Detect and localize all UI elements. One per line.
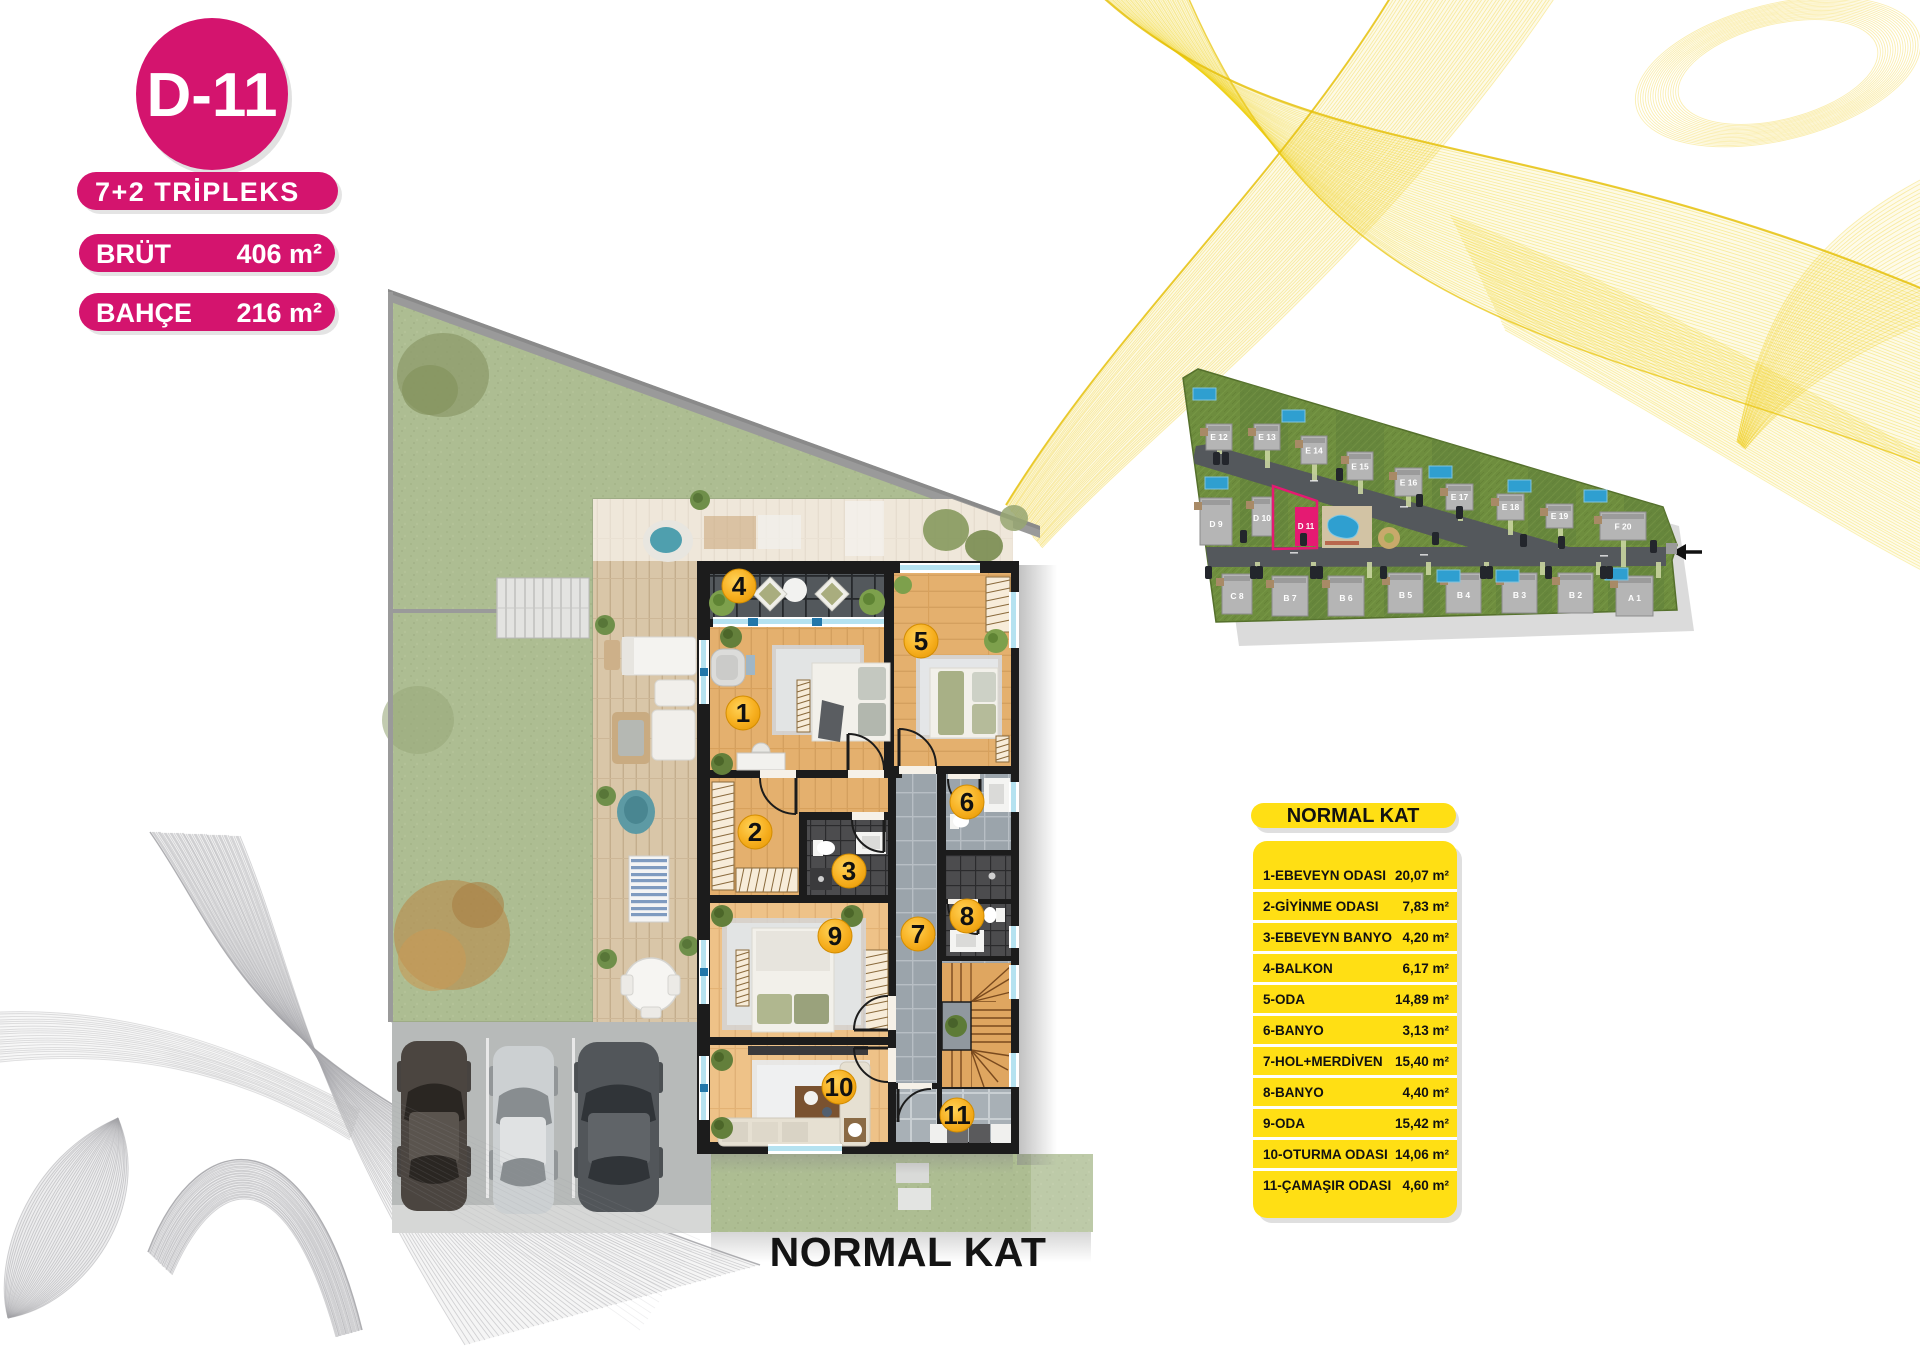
svg-text:E 17: E 17: [1451, 492, 1469, 502]
svg-text:1-EBEVEYN ODASI: 1-EBEVEYN ODASI: [1263, 868, 1386, 883]
svg-text:BAHÇE: BAHÇE: [96, 298, 192, 328]
svg-text:14,06 m²: 14,06 m²: [1395, 1147, 1450, 1162]
svg-text:4,40 m²: 4,40 m²: [1402, 1085, 1449, 1100]
svg-text:E 19: E 19: [1551, 511, 1569, 521]
svg-text:B 3: B 3: [1513, 590, 1527, 600]
svg-text:14,89 m²: 14,89 m²: [1395, 992, 1450, 1007]
svg-text:E 13: E 13: [1258, 432, 1276, 442]
svg-text:7,83 m²: 7,83 m²: [1402, 899, 1449, 914]
svg-text:BRÜT: BRÜT: [96, 239, 171, 269]
svg-text:3-EBEVEYN BANYO: 3-EBEVEYN BANYO: [1263, 930, 1392, 945]
svg-text:6: 6: [960, 787, 974, 817]
svg-text:E 12: E 12: [1210, 432, 1228, 442]
svg-text:11-ÇAMAŞIR ODASI: 11-ÇAMAŞIR ODASI: [1263, 1178, 1391, 1193]
svg-text:5: 5: [914, 626, 928, 656]
svg-text:6,17 m²: 6,17 m²: [1402, 961, 1449, 976]
svg-text:D 11: D 11: [1298, 522, 1315, 531]
svg-text:B 6: B 6: [1339, 593, 1353, 603]
svg-text:F 20: F 20: [1614, 521, 1631, 531]
svg-text:NORMAL KAT: NORMAL KAT: [1287, 805, 1420, 827]
svg-text:9: 9: [828, 921, 842, 951]
svg-text:406 m²: 406 m²: [236, 239, 322, 269]
svg-text:E 16: E 16: [1400, 477, 1418, 487]
svg-text:D 10: D 10: [1253, 513, 1271, 523]
svg-text:E 18: E 18: [1502, 502, 1520, 512]
svg-text:B 4: B 4: [1457, 590, 1471, 600]
svg-text:6-BANYO: 6-BANYO: [1263, 1023, 1324, 1038]
svg-text:3,13 m²: 3,13 m²: [1402, 1023, 1449, 1038]
svg-text:10-OTURMA ODASI: 10-OTURMA ODASI: [1263, 1147, 1388, 1162]
svg-text:8-BANYO: 8-BANYO: [1263, 1085, 1324, 1100]
svg-text:2-GİYİNME ODASI: 2-GİYİNME ODASI: [1263, 899, 1379, 914]
svg-text:4,60 m²: 4,60 m²: [1402, 1178, 1449, 1193]
svg-text:A 1: A 1: [1628, 593, 1641, 603]
svg-text:8: 8: [960, 901, 974, 931]
svg-text:D 9: D 9: [1209, 519, 1223, 529]
svg-text:4,20 m²: 4,20 m²: [1402, 930, 1449, 945]
svg-text:20,07 m²: 20,07 m²: [1395, 868, 1450, 883]
svg-text:4: 4: [732, 571, 747, 601]
svg-text:B 5: B 5: [1399, 590, 1413, 600]
svg-text:7-HOL+MERDİVEN: 7-HOL+MERDİVEN: [1263, 1054, 1383, 1069]
svg-text:7: 7: [911, 919, 925, 949]
svg-text:B 2: B 2: [1569, 590, 1583, 600]
svg-text:E 14: E 14: [1305, 445, 1323, 455]
svg-text:2: 2: [748, 817, 762, 847]
svg-text:4-BALKON: 4-BALKON: [1263, 961, 1333, 976]
svg-text:216 m²: 216 m²: [236, 298, 322, 328]
svg-text:9-ODA: 9-ODA: [1263, 1116, 1305, 1131]
svg-text:C 8: C 8: [1230, 591, 1244, 601]
svg-text:5-ODA: 5-ODA: [1263, 992, 1305, 1007]
svg-text:D-11: D-11: [147, 61, 278, 130]
svg-text:15,42 m²: 15,42 m²: [1395, 1116, 1450, 1131]
svg-text:NORMAL KAT: NORMAL KAT: [770, 1229, 1047, 1275]
svg-text:E 15: E 15: [1351, 461, 1369, 471]
svg-text:11: 11: [943, 1100, 971, 1130]
svg-text:7+2 TRİPLEKS: 7+2 TRİPLEKS: [95, 177, 300, 207]
svg-text:3: 3: [842, 856, 856, 886]
svg-text:10: 10: [825, 1072, 854, 1102]
svg-text:1: 1: [736, 698, 750, 728]
svg-text:B 7: B 7: [1283, 593, 1297, 603]
svg-text:15,40 m²: 15,40 m²: [1395, 1054, 1450, 1069]
